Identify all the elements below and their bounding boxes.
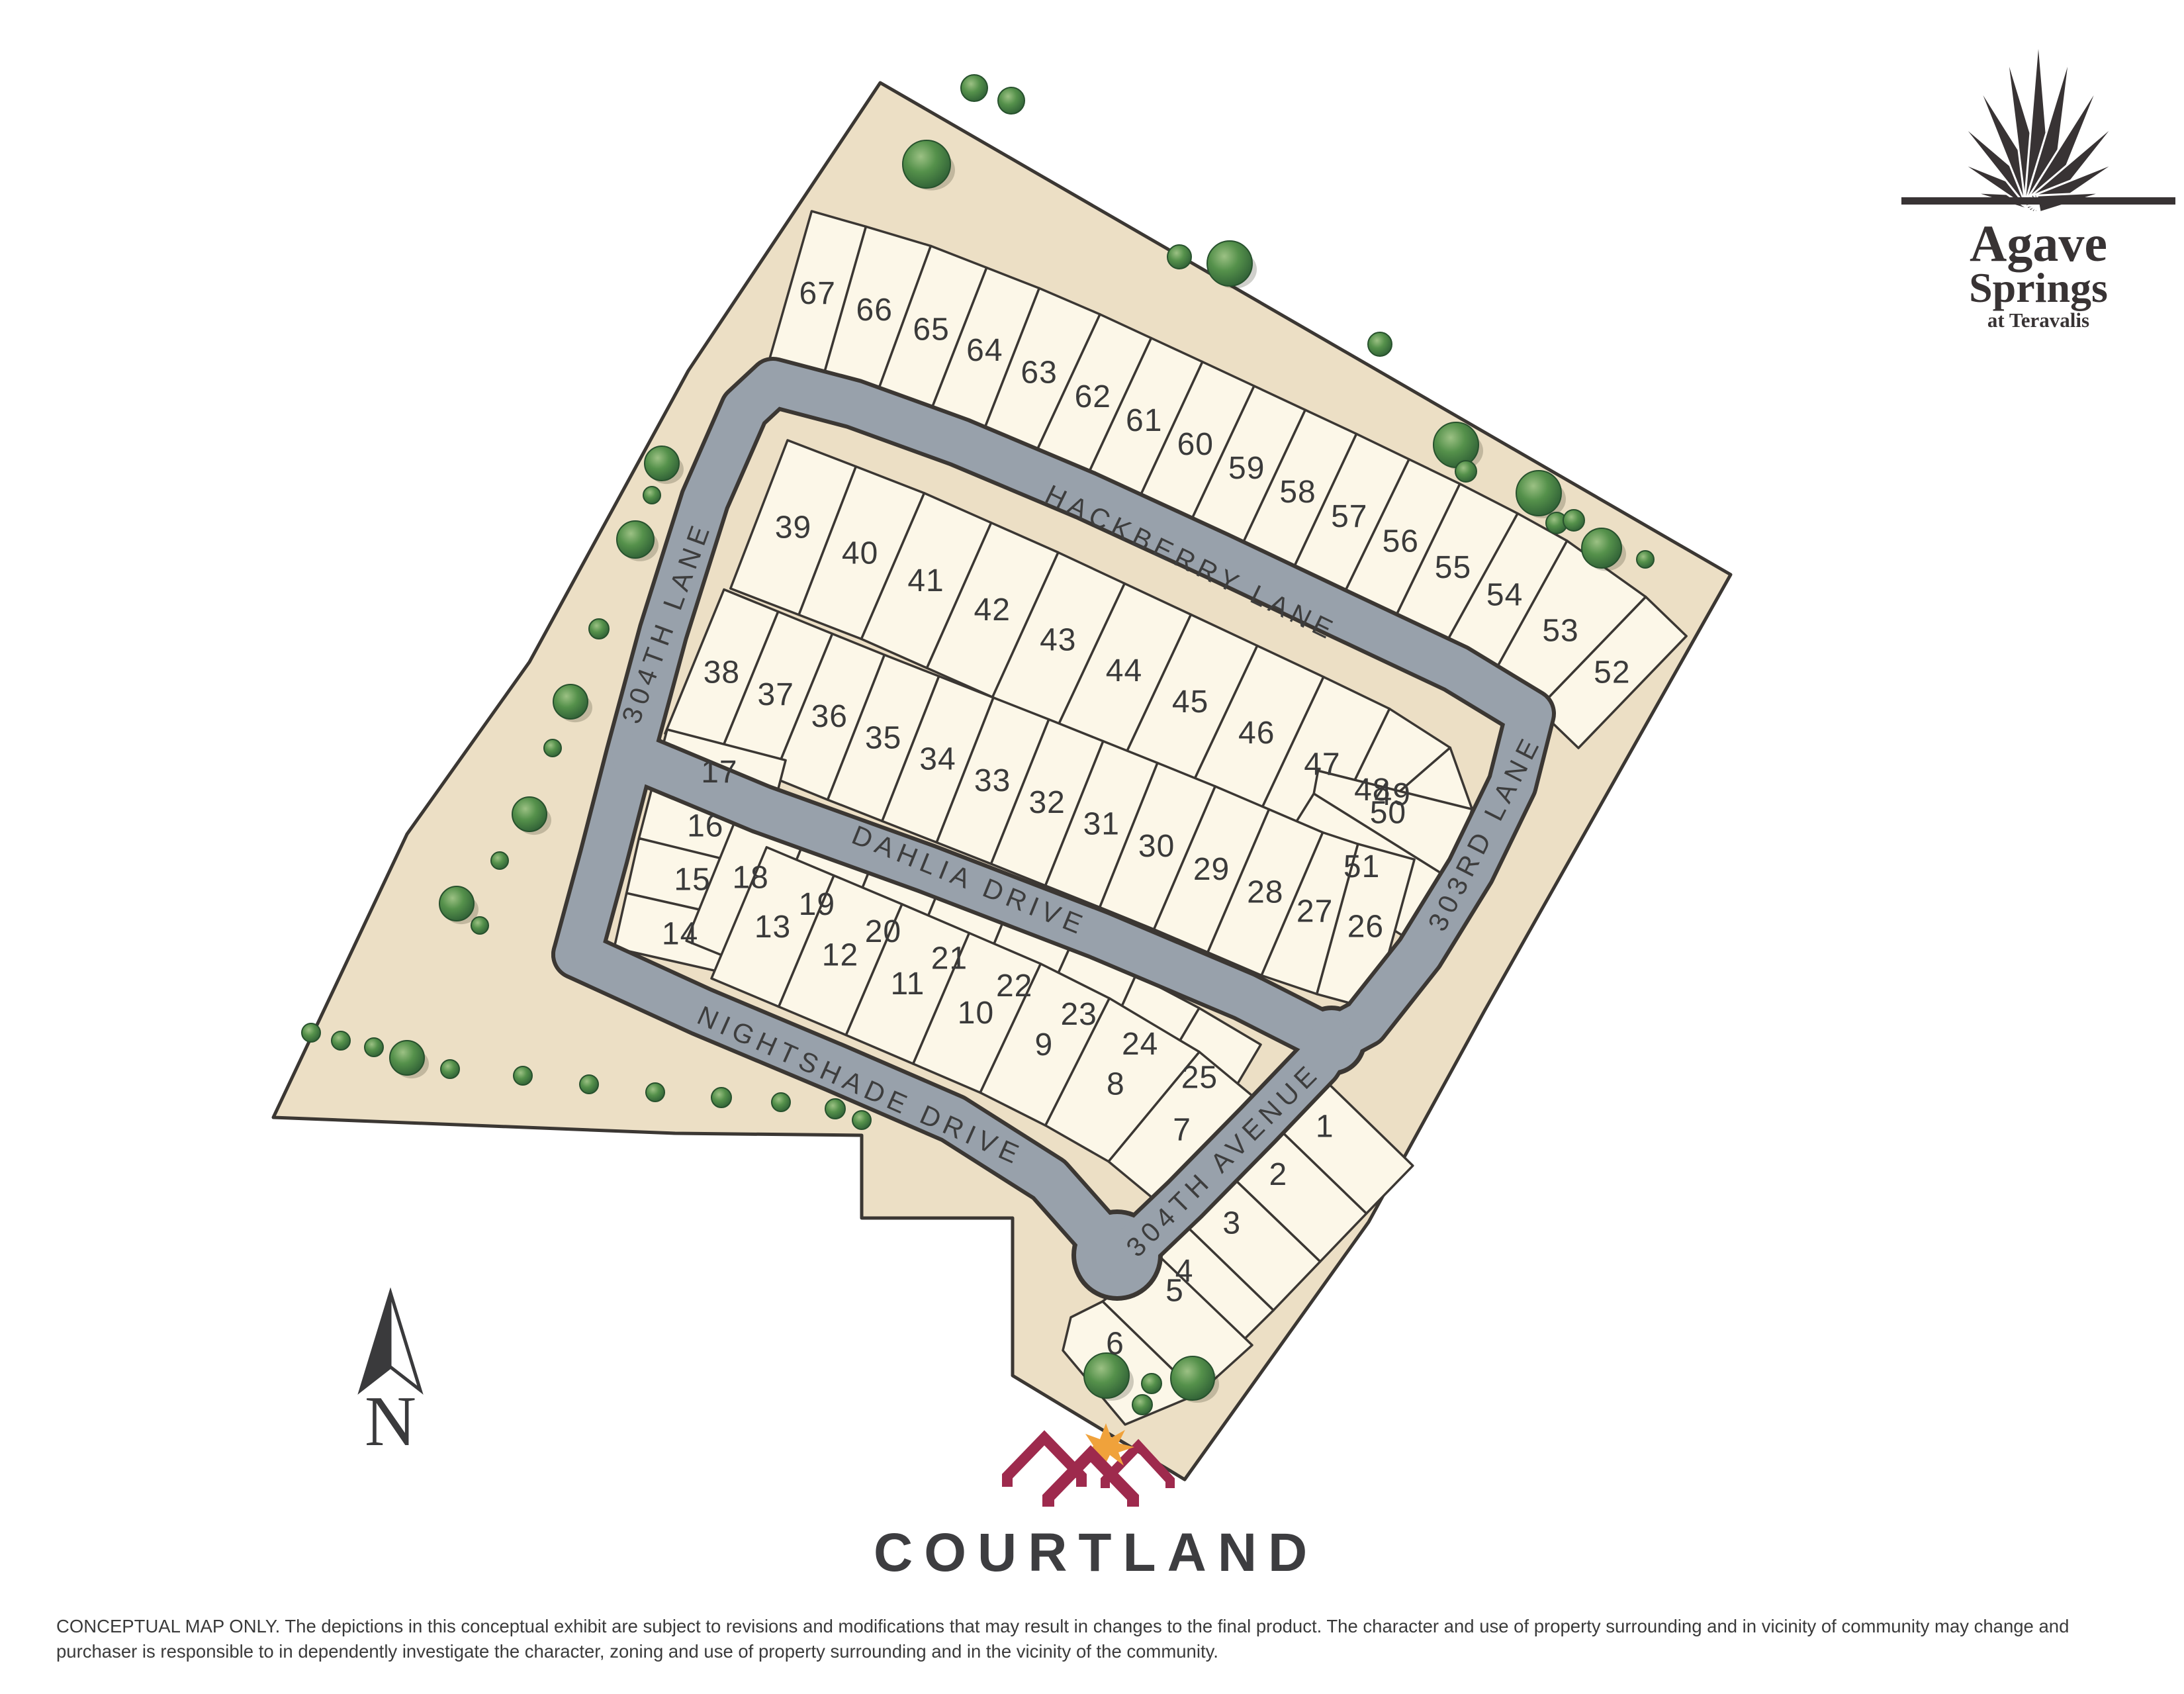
tree-icon bbox=[645, 446, 679, 481]
lot-number: 14 bbox=[662, 916, 698, 951]
north-arrow: N bbox=[328, 1288, 453, 1453]
tree-icon bbox=[1455, 461, 1477, 482]
lot-number: 28 bbox=[1247, 875, 1283, 910]
tree-icon bbox=[961, 75, 987, 101]
lot-number: 13 bbox=[754, 910, 791, 945]
tree-icon bbox=[1582, 528, 1621, 568]
lot-number: 7 bbox=[1173, 1113, 1191, 1148]
lot-number: 42 bbox=[974, 592, 1011, 628]
tree-icon bbox=[553, 684, 588, 719]
lot-number: 32 bbox=[1028, 785, 1065, 820]
lot-number: 26 bbox=[1347, 909, 1384, 944]
disclaimer-text: CONCEPTUAL MAP ONLY. The depictions in t… bbox=[56, 1614, 2161, 1664]
lot-number: 45 bbox=[1172, 684, 1208, 720]
rooflines-icon bbox=[989, 1423, 1195, 1516]
lot-number: 18 bbox=[732, 861, 768, 896]
lot-number: 19 bbox=[799, 887, 835, 922]
north-arrow-fill bbox=[361, 1293, 390, 1390]
tree-icon bbox=[852, 1111, 871, 1129]
tree-icon bbox=[1132, 1395, 1152, 1415]
lot-number: 52 bbox=[1594, 655, 1630, 690]
lot-number: 1 bbox=[1316, 1109, 1334, 1145]
lot-number: 34 bbox=[919, 742, 956, 777]
lot-number: 31 bbox=[1083, 807, 1120, 842]
tree-icon bbox=[1368, 332, 1392, 356]
tree-icon bbox=[825, 1099, 845, 1119]
tree-icon bbox=[1171, 1356, 1214, 1400]
tree-icon bbox=[589, 619, 609, 639]
tree-icon bbox=[491, 852, 508, 869]
lot-number: 9 bbox=[1035, 1027, 1054, 1062]
lot-number: 21 bbox=[931, 941, 968, 976]
lot-number: 55 bbox=[1435, 550, 1471, 585]
builder-name: COURTLAND bbox=[874, 1522, 1310, 1584]
agave-plant-icon bbox=[1896, 32, 2181, 212]
tree-icon bbox=[1516, 471, 1561, 516]
lot-number: 5 bbox=[1165, 1274, 1184, 1309]
lot-number: 59 bbox=[1228, 451, 1265, 486]
tree-icon bbox=[643, 487, 660, 504]
tree-icon bbox=[512, 797, 547, 831]
lot-number: 51 bbox=[1343, 849, 1380, 884]
tree-icon bbox=[302, 1023, 320, 1042]
lot-number: 29 bbox=[1193, 852, 1230, 887]
tree-icon bbox=[365, 1038, 383, 1057]
lot-number: 27 bbox=[1297, 894, 1333, 929]
tree-icon bbox=[390, 1041, 424, 1075]
lot-number: 10 bbox=[958, 996, 994, 1031]
lot-number: 2 bbox=[1269, 1157, 1288, 1192]
lot-number: 25 bbox=[1181, 1060, 1218, 1096]
lot-number: 15 bbox=[674, 862, 710, 897]
lot-number: 11 bbox=[890, 966, 925, 1002]
tree-icon bbox=[514, 1066, 532, 1085]
community-name-line2: Springs bbox=[1883, 268, 2184, 308]
lot-number: 12 bbox=[822, 938, 858, 973]
lot-number: 35 bbox=[865, 720, 901, 755]
builder-logo: COURTLAND bbox=[874, 1423, 1310, 1584]
lot-number: 62 bbox=[1075, 379, 1111, 414]
tree-icon bbox=[332, 1031, 350, 1050]
lot-number: 46 bbox=[1238, 716, 1275, 751]
tree-icon bbox=[1433, 422, 1479, 467]
tree-icon bbox=[1563, 510, 1584, 531]
lot-number: 23 bbox=[1060, 997, 1097, 1032]
tree-icon bbox=[1637, 551, 1654, 568]
lot-number: 57 bbox=[1331, 499, 1367, 534]
tree-icon bbox=[439, 886, 474, 921]
lot-number: 17 bbox=[701, 755, 737, 790]
lot-number: 33 bbox=[974, 763, 1011, 798]
lot-number: 60 bbox=[1177, 427, 1214, 462]
lot-number: 44 bbox=[1106, 653, 1142, 688]
lot-number: 50 bbox=[1370, 795, 1406, 830]
tree-icon bbox=[617, 521, 654, 558]
lot-number: 61 bbox=[1126, 403, 1162, 438]
tree-icon bbox=[1167, 245, 1191, 269]
tree-icon bbox=[711, 1088, 731, 1107]
lot-number: 22 bbox=[996, 968, 1032, 1004]
lot-number: 66 bbox=[856, 293, 893, 328]
logo-divider-line bbox=[1901, 197, 2175, 205]
lot-number: 37 bbox=[758, 677, 794, 712]
tree-icon bbox=[1142, 1374, 1161, 1393]
lot-number: 53 bbox=[1542, 613, 1578, 648]
tree-icon bbox=[544, 739, 561, 757]
lot-number: 36 bbox=[811, 699, 848, 734]
community-name-line3: at Teravalis bbox=[1883, 309, 2184, 332]
tree-icon bbox=[772, 1093, 790, 1111]
lot-number: 40 bbox=[842, 536, 878, 571]
lot-number: 43 bbox=[1040, 622, 1076, 657]
lot-number: 58 bbox=[1279, 475, 1316, 510]
lot-number: 3 bbox=[1222, 1205, 1241, 1241]
community-logo: Agave Springs at Teravalis bbox=[1883, 32, 2184, 332]
lot-number: 41 bbox=[907, 563, 944, 598]
tree-icon bbox=[646, 1083, 664, 1102]
disclaimer-line-1: CONCEPTUAL MAP ONLY. The depictions in t… bbox=[56, 1614, 2161, 1639]
lot-number: 56 bbox=[1383, 524, 1419, 559]
lot-number: 67 bbox=[799, 276, 836, 311]
lot-number: 16 bbox=[687, 808, 723, 843]
tree-icon bbox=[903, 140, 950, 188]
tree-icon bbox=[1207, 241, 1252, 286]
tree-icon bbox=[441, 1060, 459, 1078]
lot-number: 47 bbox=[1304, 747, 1340, 782]
north-label: N bbox=[365, 1382, 416, 1453]
page: { "branding": { "community": {"line1": "… bbox=[0, 0, 2184, 1694]
tree-icon bbox=[580, 1075, 598, 1094]
lot-number: 63 bbox=[1021, 355, 1057, 391]
lot-number: 39 bbox=[775, 510, 811, 545]
lot-number: 54 bbox=[1486, 578, 1523, 613]
lot-number: 64 bbox=[966, 333, 1003, 368]
community-name-line1: Agave bbox=[1883, 220, 2184, 267]
tree-icon bbox=[998, 87, 1024, 114]
lot-number: 30 bbox=[1138, 829, 1175, 864]
disclaimer-line-2: purchaser is responsible to in dependent… bbox=[56, 1639, 2161, 1664]
lot-number: 24 bbox=[1122, 1027, 1158, 1062]
lot-number: 20 bbox=[865, 914, 901, 949]
lot-number: 8 bbox=[1107, 1066, 1125, 1102]
lot-number: 6 bbox=[1106, 1327, 1124, 1362]
tree-icon bbox=[471, 917, 488, 934]
lot-number: 65 bbox=[913, 312, 949, 347]
lot-number: 38 bbox=[704, 655, 740, 690]
